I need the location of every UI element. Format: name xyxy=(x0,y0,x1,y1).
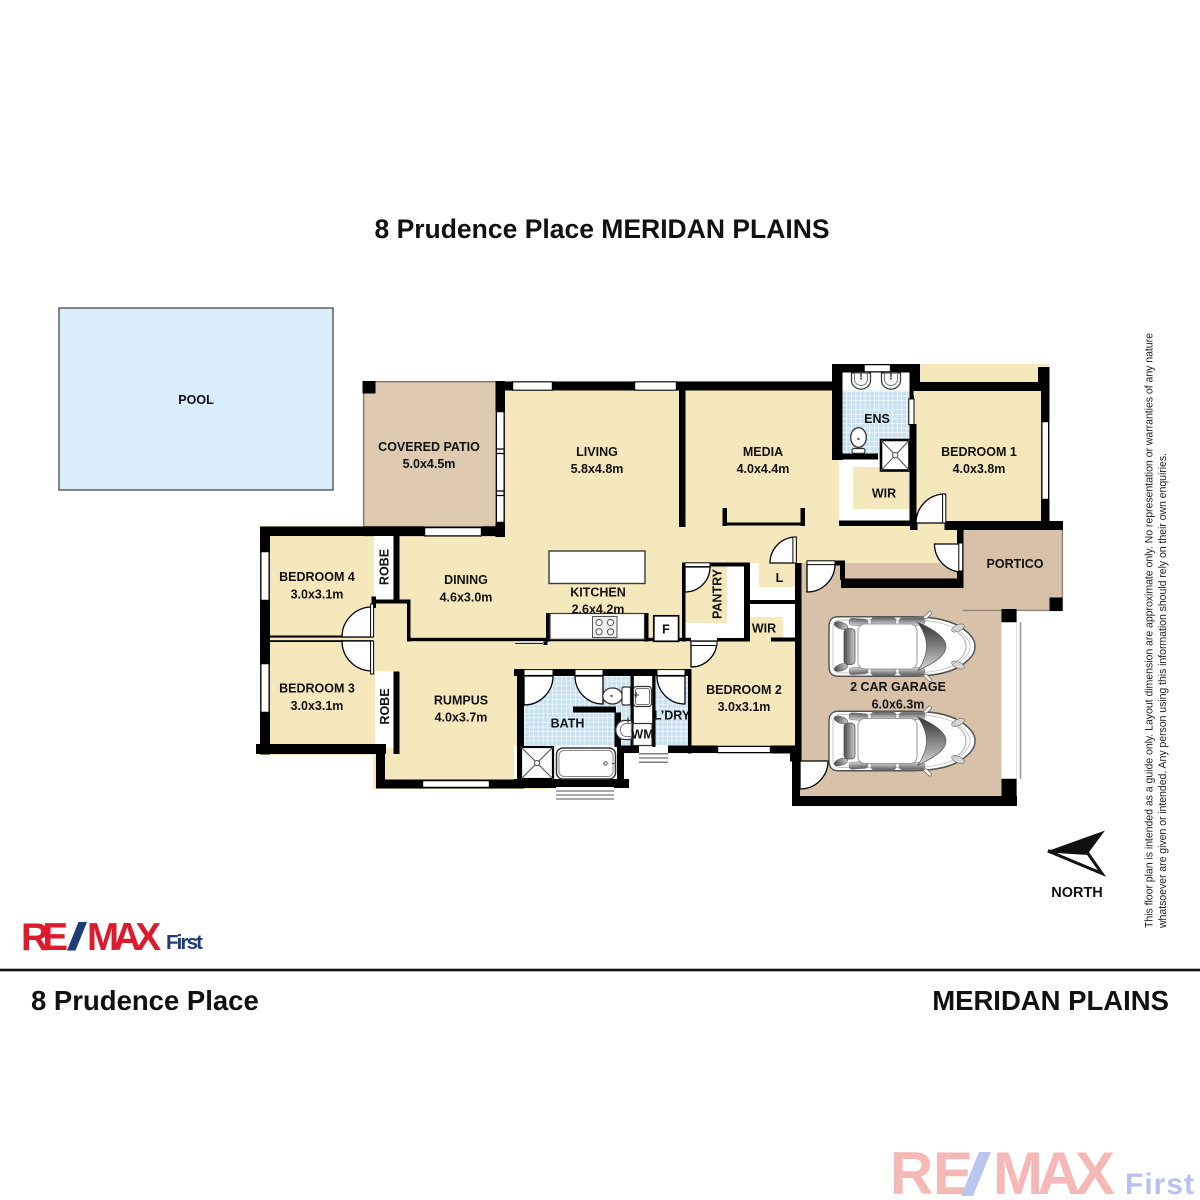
svg-text:MAX: MAX xyxy=(993,1140,1115,1200)
svg-text:4.0x4.4m: 4.0x4.4m xyxy=(737,462,790,476)
svg-text:4.0x3.7m: 4.0x3.7m xyxy=(435,711,488,725)
svg-text:RE: RE xyxy=(21,916,68,959)
svg-text:3.0x3.1m: 3.0x3.1m xyxy=(718,700,771,714)
svg-text:COVERED PATIO: COVERED PATIO xyxy=(378,440,480,454)
svg-text:6.0x6.3m: 6.0x6.3m xyxy=(872,698,925,712)
svg-text:F: F xyxy=(662,623,670,637)
svg-text:8 Prudence Place MERIDAN PLAIN: 8 Prudence Place MERIDAN PLAINS xyxy=(374,214,829,244)
svg-text:DINING: DINING xyxy=(444,573,488,587)
svg-text:BEDROOM 4: BEDROOM 4 xyxy=(279,570,355,584)
svg-text:2 CAR GARAGE: 2 CAR GARAGE xyxy=(850,680,946,694)
svg-text:4.0x3.8m: 4.0x3.8m xyxy=(953,462,1006,476)
svg-text:L: L xyxy=(776,571,784,585)
svg-text:BEDROOM 1: BEDROOM 1 xyxy=(941,445,1017,459)
svg-text:WIR: WIR xyxy=(752,622,776,636)
svg-text:MAX: MAX xyxy=(87,916,161,959)
svg-text:MERIDAN PLAINS: MERIDAN PLAINS xyxy=(932,985,1169,1016)
svg-text:BEDROOM 3: BEDROOM 3 xyxy=(279,682,355,696)
svg-text:ROBE: ROBE xyxy=(378,549,392,585)
svg-text:3.0x3.1m: 3.0x3.1m xyxy=(291,588,344,602)
svg-text:PANTRY: PANTRY xyxy=(711,568,725,619)
svg-text:KITCHEN: KITCHEN xyxy=(570,586,626,600)
svg-text:whatsoever are given or intend: whatsoever are given or intended. Any pe… xyxy=(1157,453,1169,929)
svg-text:ENS: ENS xyxy=(864,412,890,426)
svg-text:RUMPUS: RUMPUS xyxy=(434,694,488,708)
svg-text:5.8x4.8m: 5.8x4.8m xyxy=(571,462,624,476)
svg-text:RE: RE xyxy=(890,1140,973,1200)
svg-text:ROBE: ROBE xyxy=(378,688,392,724)
svg-text:POOL: POOL xyxy=(178,393,214,407)
svg-text:8 Prudence Place: 8 Prudence Place xyxy=(31,985,259,1016)
svg-text:LIVING: LIVING xyxy=(576,445,618,459)
svg-text:WIR: WIR xyxy=(872,487,896,501)
svg-text:BEDROOM 2: BEDROOM 2 xyxy=(706,683,782,697)
svg-text:3.0x3.1m: 3.0x3.1m xyxy=(291,699,344,713)
svg-text:First: First xyxy=(1125,1168,1194,1200)
svg-text:PORTICO: PORTICO xyxy=(987,557,1044,571)
svg-text:WM: WM xyxy=(631,728,653,742)
svg-text:5.0x4.5m: 5.0x4.5m xyxy=(403,457,456,471)
svg-text:MEDIA: MEDIA xyxy=(743,445,783,459)
svg-text:NORTH: NORTH xyxy=(1051,885,1103,901)
svg-text:2.6x4.2m: 2.6x4.2m xyxy=(572,603,625,617)
svg-text:This floor plan is intended as: This floor plan is intended as a guide o… xyxy=(1144,333,1156,928)
svg-text:4.6x3.0m: 4.6x3.0m xyxy=(440,591,493,605)
svg-text:BATH: BATH xyxy=(551,717,585,731)
svg-text:L’DRY: L’DRY xyxy=(654,709,691,723)
svg-text:First: First xyxy=(166,931,203,954)
